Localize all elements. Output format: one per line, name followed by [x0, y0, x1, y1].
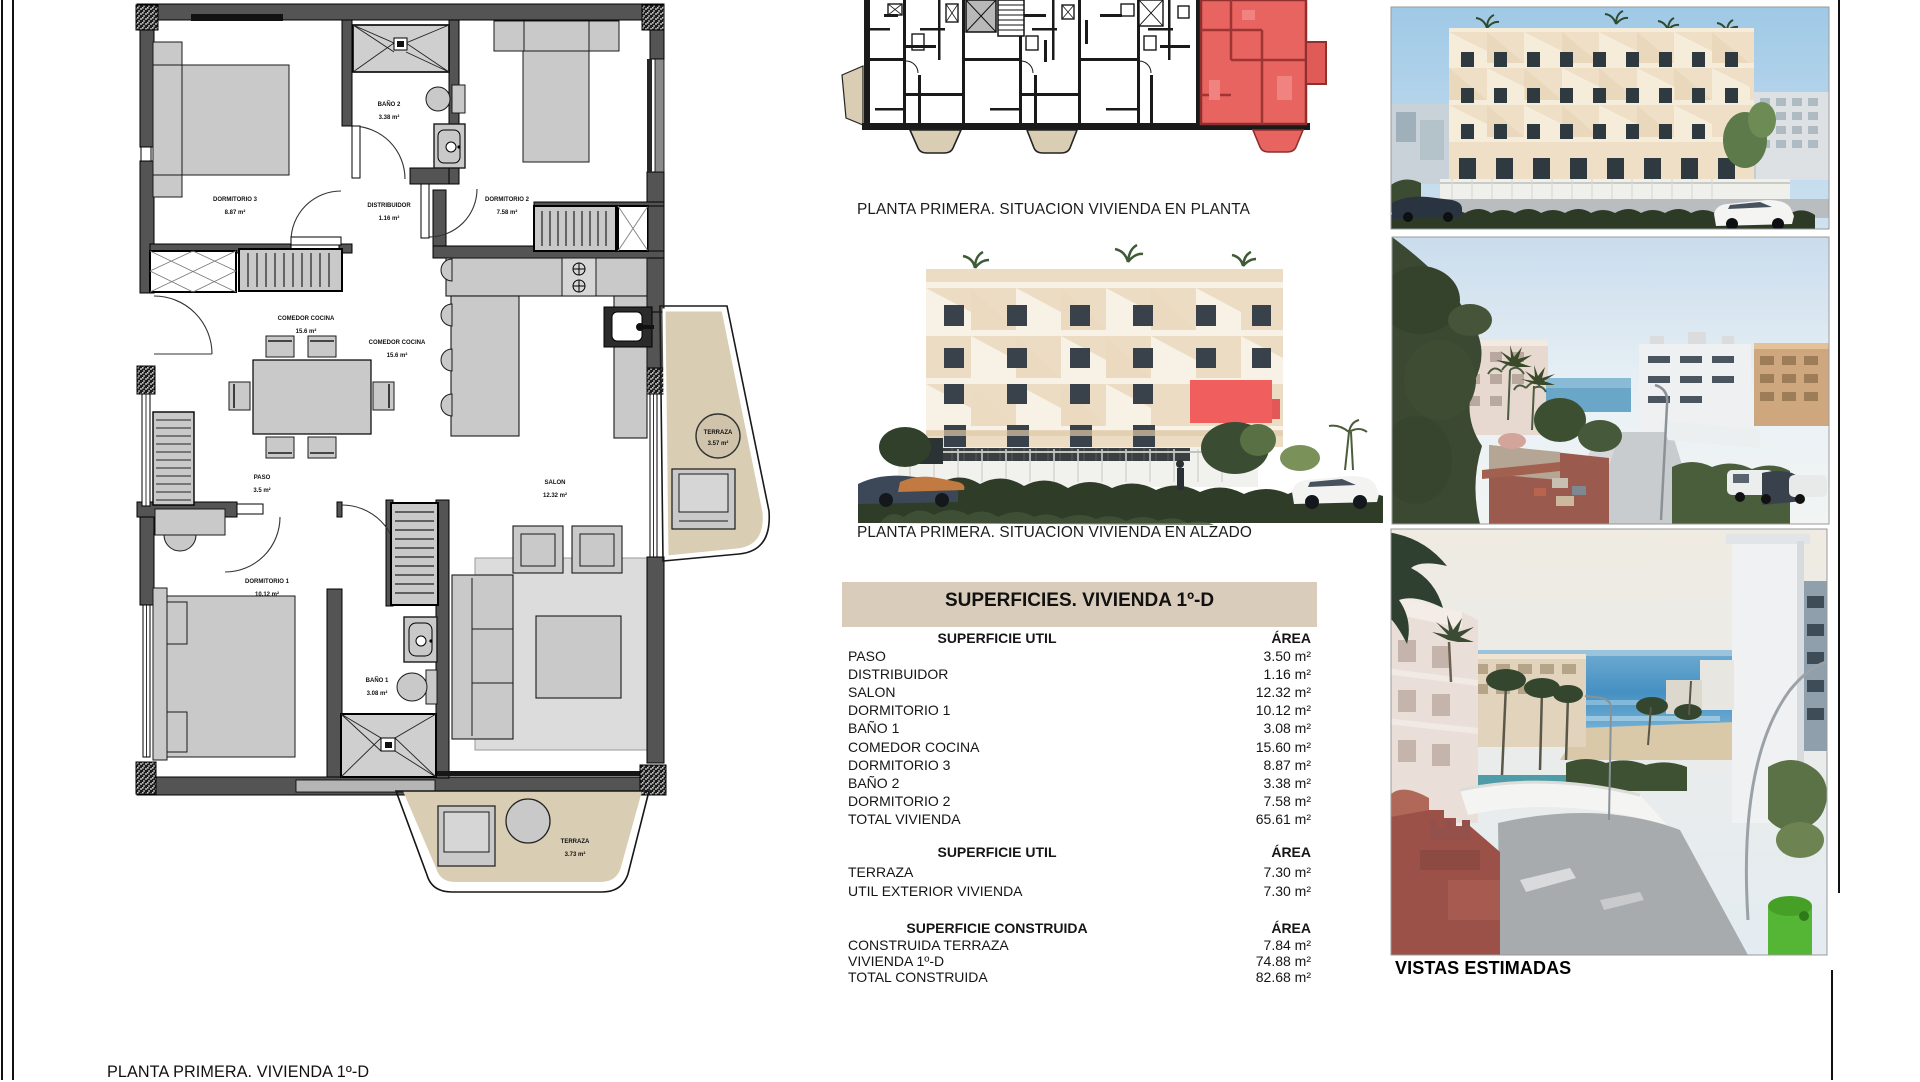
- svg-text:15.6 m²: 15.6 m²: [387, 352, 408, 359]
- svg-text:PASO: PASO: [254, 475, 271, 481]
- svg-text:COMEDOR COCINA: COMEDOR COCINA: [369, 340, 426, 346]
- svg-text:DORMITORIO 3: DORMITORIO 3: [213, 197, 258, 203]
- svg-text:3.57 m²: 3.57 m²: [708, 440, 729, 447]
- svg-text:7.58 m²: 7.58 m²: [497, 209, 518, 216]
- svg-text:3.73 m²: 3.73 m²: [565, 851, 586, 858]
- svg-text:DORMITORIO 2: DORMITORIO 2: [485, 197, 530, 203]
- svg-text:TERRAZA: TERRAZA: [704, 430, 733, 436]
- svg-text:BAÑO 2: BAÑO 2: [378, 101, 401, 108]
- svg-text:DORMITORIO 1: DORMITORIO 1: [245, 579, 290, 585]
- svg-text:DISTRIBUIDOR: DISTRIBUIDOR: [367, 203, 411, 209]
- svg-text:3.5 m²: 3.5 m²: [253, 487, 270, 494]
- svg-text:12.32 m²: 12.32 m²: [543, 492, 567, 499]
- svg-text:15.6 m²: 15.6 m²: [296, 328, 317, 335]
- svg-text:COMEDOR COCINA: COMEDOR COCINA: [278, 316, 335, 322]
- svg-text:3.38 m²: 3.38 m²: [379, 114, 400, 121]
- svg-text:1.16 m²: 1.16 m²: [379, 215, 400, 222]
- svg-text:8.87 m²: 8.87 m²: [225, 209, 246, 216]
- svg-text:3.08 m²: 3.08 m²: [367, 690, 388, 697]
- svg-text:BAÑO 1: BAÑO 1: [366, 677, 389, 684]
- svg-text:TERRAZA: TERRAZA: [561, 839, 590, 845]
- svg-text:SALON: SALON: [545, 480, 566, 486]
- svg-text:10.12 m²: 10.12 m²: [255, 591, 279, 598]
